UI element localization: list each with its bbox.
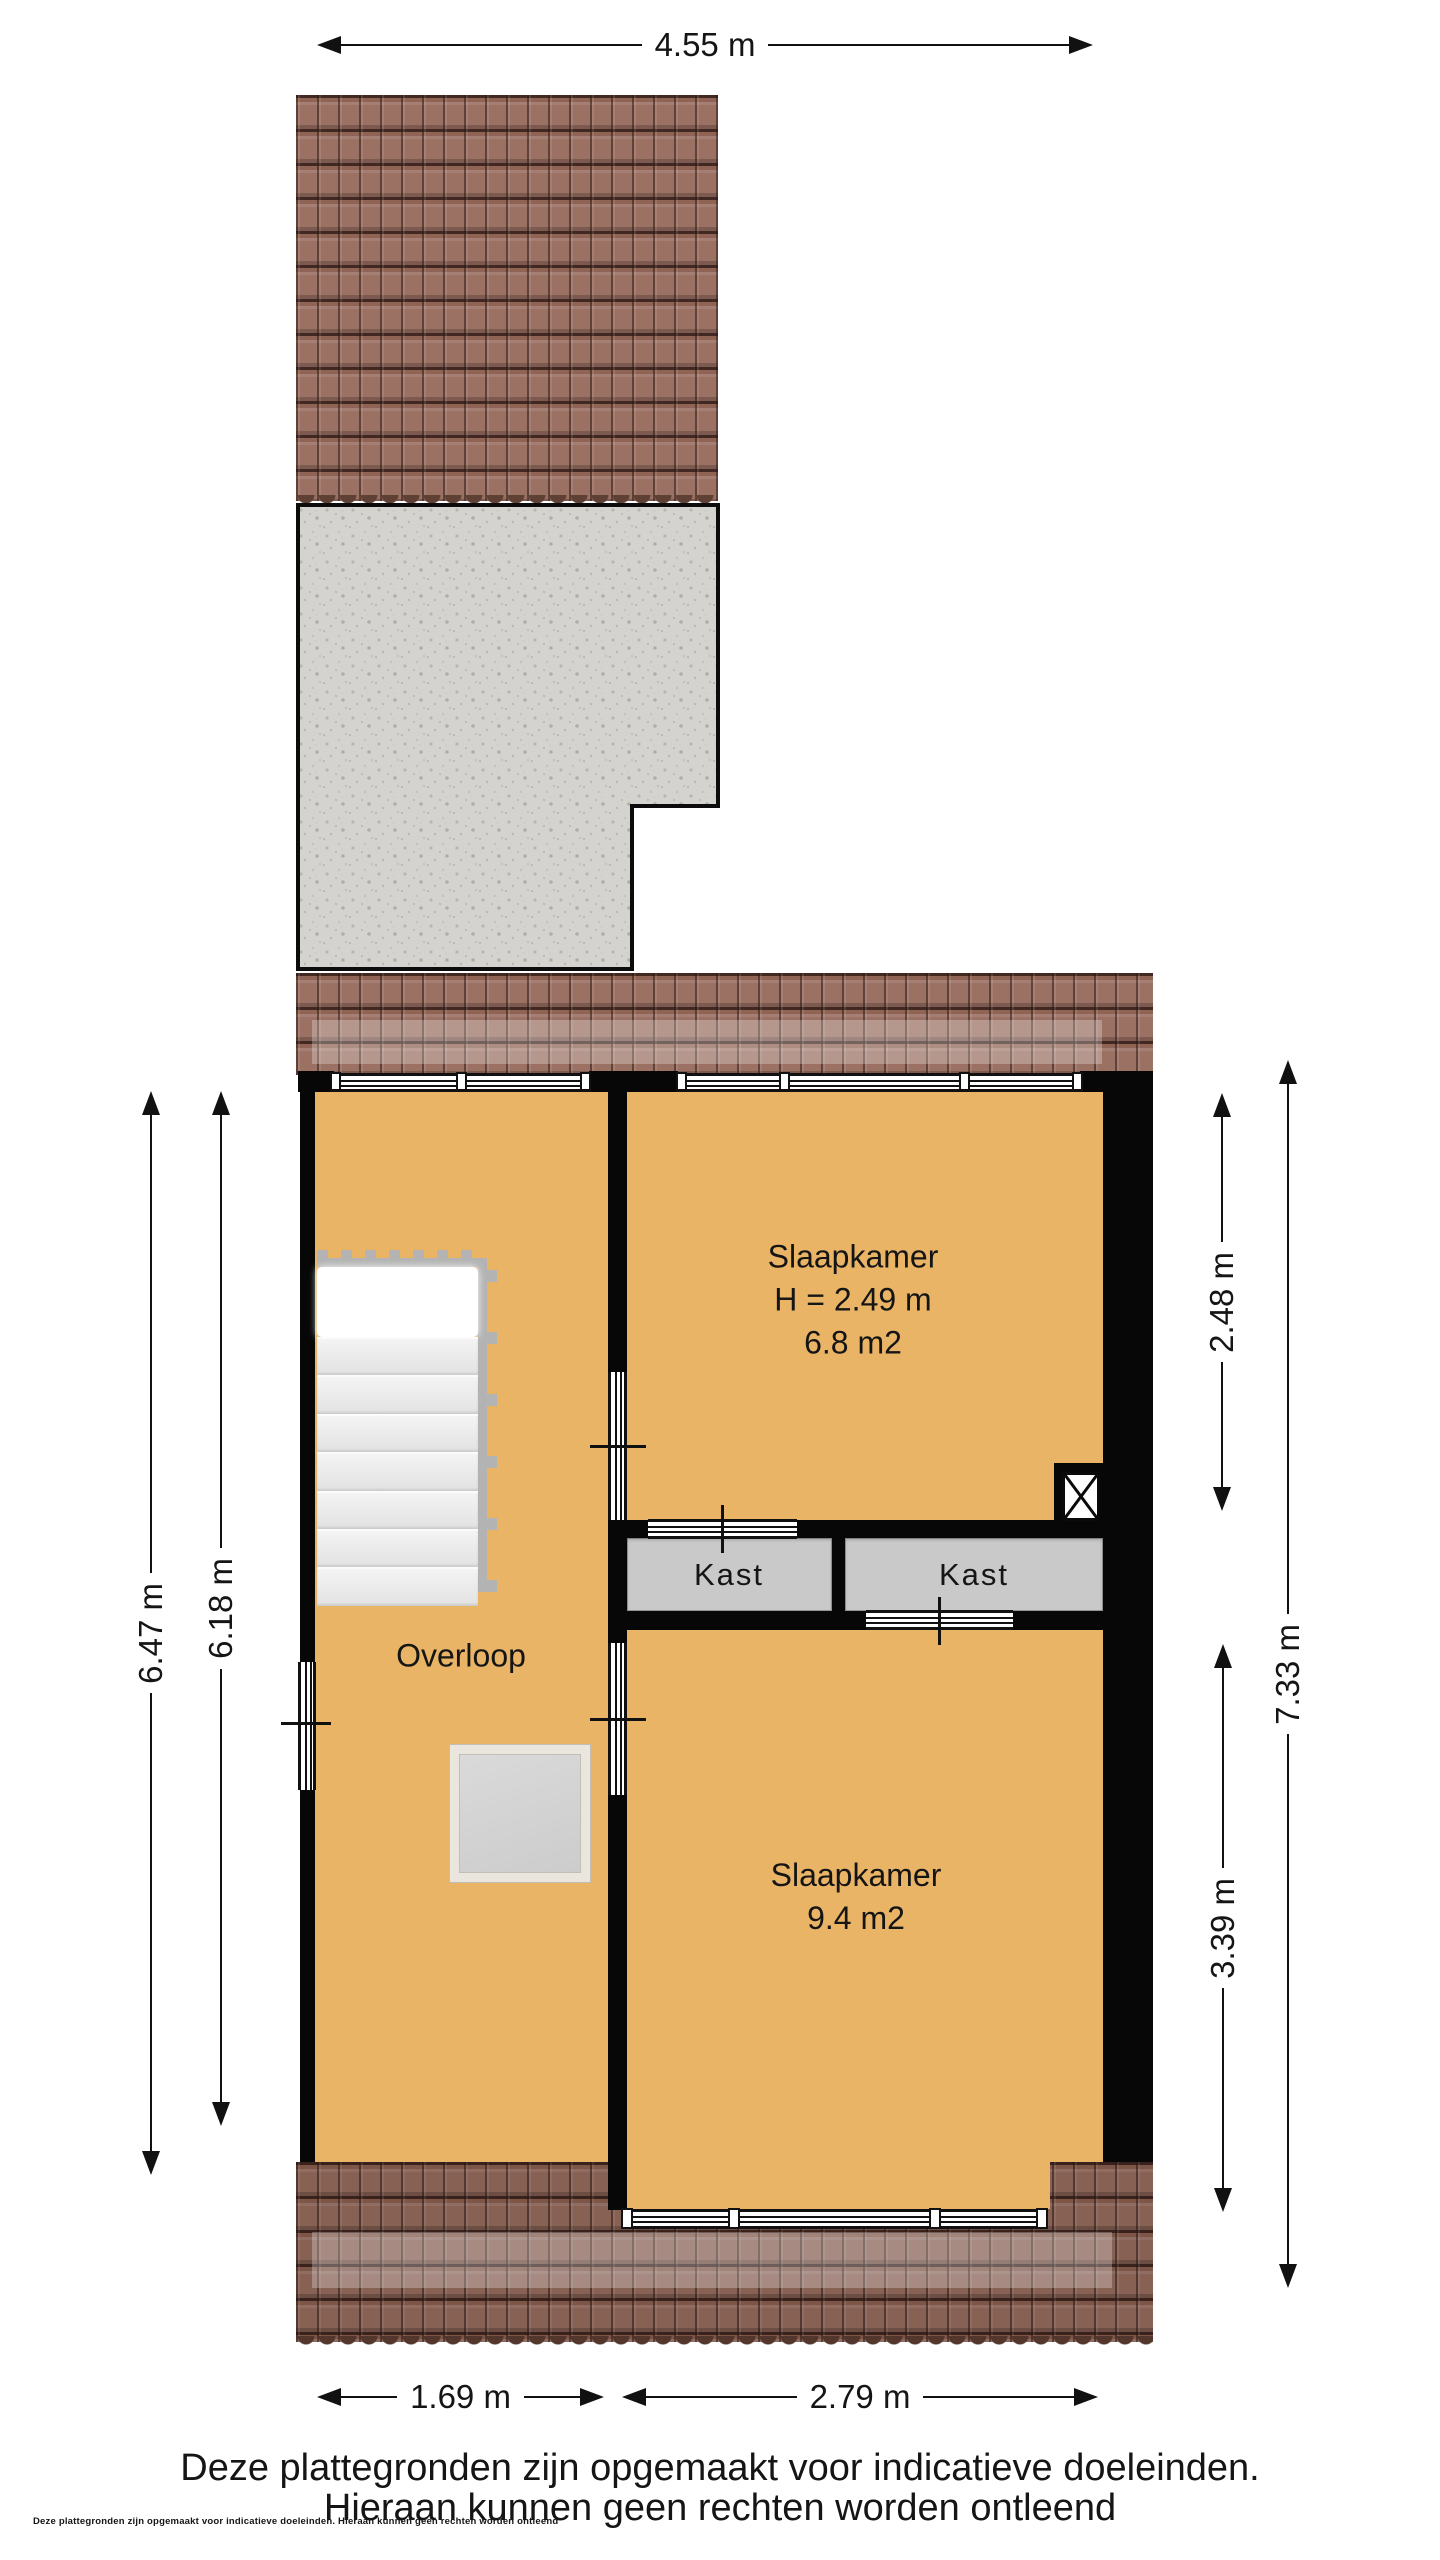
window-bottom-bedroom [621, 2209, 1048, 2229]
stairs [315, 1250, 497, 1592]
wall-top-middle [589, 1071, 678, 1092]
dimension-right-full: 7.33 m [1274, 1060, 1302, 2288]
stairs-side-teeth [487, 1270, 497, 1592]
dimension-top-width-label: 4.55 m [642, 26, 769, 64]
upper-roof [296, 95, 718, 501]
room-label-kast-right: Kast [939, 1557, 1009, 1593]
room-label-slaapkamer-top: Slaapkamer H = 2.49 m 6.8 m2 [768, 1236, 939, 1365]
dimension-right-top: 2.48 m [1208, 1093, 1236, 1511]
dimension-bottom-left: 1.69 m [317, 2383, 604, 2411]
floorplan-page: 4.55 m [0, 0, 1440, 2560]
arrow-up-icon [142, 1091, 160, 1115]
stairs-stringer [478, 1258, 487, 1592]
dimension-top-width: 4.55 m [317, 31, 1093, 59]
dimension-right-bottom: 3.39 m [1209, 1644, 1237, 2212]
disclaimer-line-1: Deze plattegronden zijn opgemaakt voor i… [0, 2448, 1440, 2488]
arrow-right-icon [1069, 36, 1093, 54]
wall-top-right [1080, 1071, 1153, 1092]
arrow-left-icon [317, 36, 341, 54]
room-label-overloop: Overloop [396, 1635, 526, 1678]
dimension-left-outer: 6.47 m [137, 1091, 165, 2175]
skylight [450, 1745, 590, 1882]
wall-closet-bottom [608, 1611, 1103, 1630]
floor-dormer-extension [627, 2162, 1050, 2209]
dimension-left-inner: 6.18 m [207, 1091, 235, 2126]
wall-right-exterior [1103, 1092, 1153, 2162]
room-label-slaapkamer-bottom: Slaapkamer 9.4 m2 [771, 1854, 942, 1940]
roof-sheen-top [312, 1020, 1102, 1064]
wall-closet-divider [832, 1538, 845, 1611]
dimension-bottom-right: 2.79 m [622, 2383, 1098, 2411]
roof-sheen-bottom [312, 2232, 1112, 2288]
concrete-terrace [296, 503, 720, 971]
flue-x-icon [1062, 1472, 1100, 1521]
room-label-kast-left: Kast [694, 1557, 764, 1593]
fineprint-text: Deze plattegronden zijn opgemaakt voor i… [33, 2516, 558, 2527]
arrow-down-icon [142, 2151, 160, 2175]
wall-left-exterior [300, 1092, 315, 2162]
window-top-bedroom [676, 1073, 1083, 1092]
wall-top-left [298, 1071, 334, 1092]
window-left-wall [298, 1662, 316, 1790]
stairs-landing [317, 1267, 478, 1337]
stairs-steps [317, 1337, 478, 1592]
